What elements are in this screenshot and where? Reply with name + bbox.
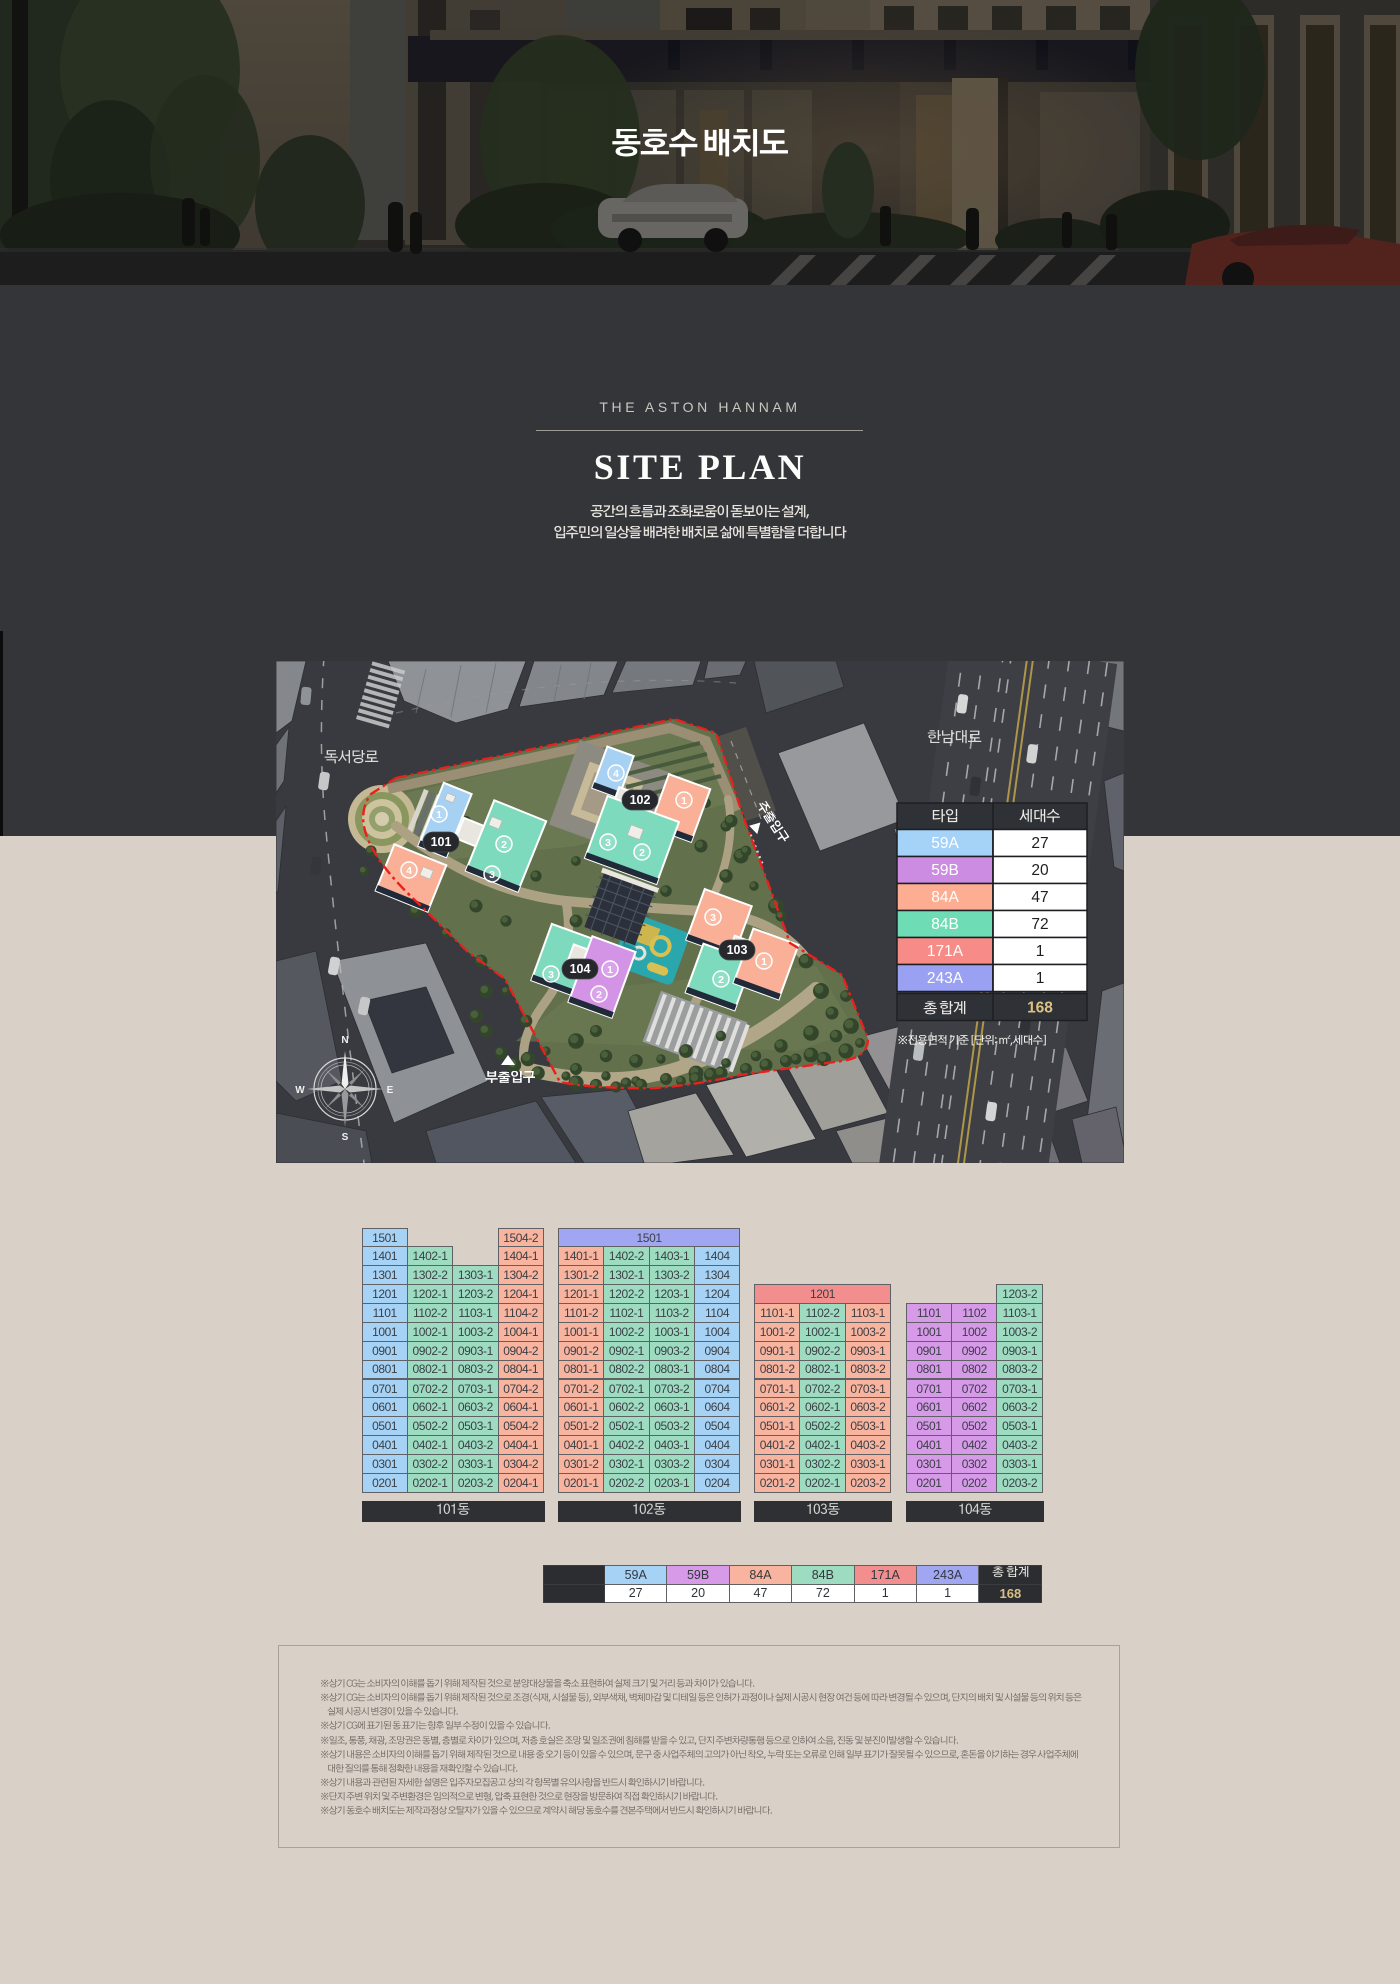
svg-text:2: 2 [639, 847, 645, 859]
svg-text:1: 1 [1036, 943, 1045, 960]
svg-text:4: 4 [406, 865, 412, 877]
svg-text:59A: 59A [931, 835, 959, 852]
svg-text:1: 1 [761, 956, 767, 968]
svg-text:84A: 84A [931, 889, 959, 906]
svg-text:W: W [295, 1085, 305, 1096]
svg-text:103: 103 [727, 943, 748, 957]
svg-text:3: 3 [710, 912, 716, 924]
svg-text:2: 2 [718, 974, 724, 986]
svg-text:E: E [387, 1085, 394, 1096]
svg-text:47: 47 [1031, 889, 1048, 906]
svg-text:72: 72 [1031, 916, 1048, 933]
svg-text:171A: 171A [927, 943, 964, 960]
svg-text:3: 3 [489, 869, 495, 881]
svg-text:2: 2 [501, 839, 507, 851]
svg-text:S: S [342, 1132, 349, 1143]
svg-text:27: 27 [1031, 835, 1048, 852]
svg-text:1: 1 [436, 809, 442, 821]
svg-text:84B: 84B [931, 916, 959, 933]
svg-text:20: 20 [1031, 862, 1049, 879]
svg-text:1: 1 [607, 964, 613, 976]
svg-text:1: 1 [681, 795, 687, 807]
svg-text:59B: 59B [931, 862, 959, 879]
svg-text:102: 102 [630, 793, 651, 807]
svg-text:104: 104 [570, 962, 591, 976]
svg-text:168: 168 [1027, 1000, 1053, 1017]
svg-text:1: 1 [1036, 970, 1045, 987]
svg-text:2: 2 [596, 989, 602, 1001]
svg-text:N: N [341, 1035, 348, 1046]
svg-text:3: 3 [548, 969, 554, 981]
svg-text:3: 3 [605, 837, 611, 849]
svg-text:101: 101 [431, 835, 452, 849]
svg-text:243A: 243A [927, 970, 964, 987]
svg-text:4: 4 [613, 768, 619, 780]
